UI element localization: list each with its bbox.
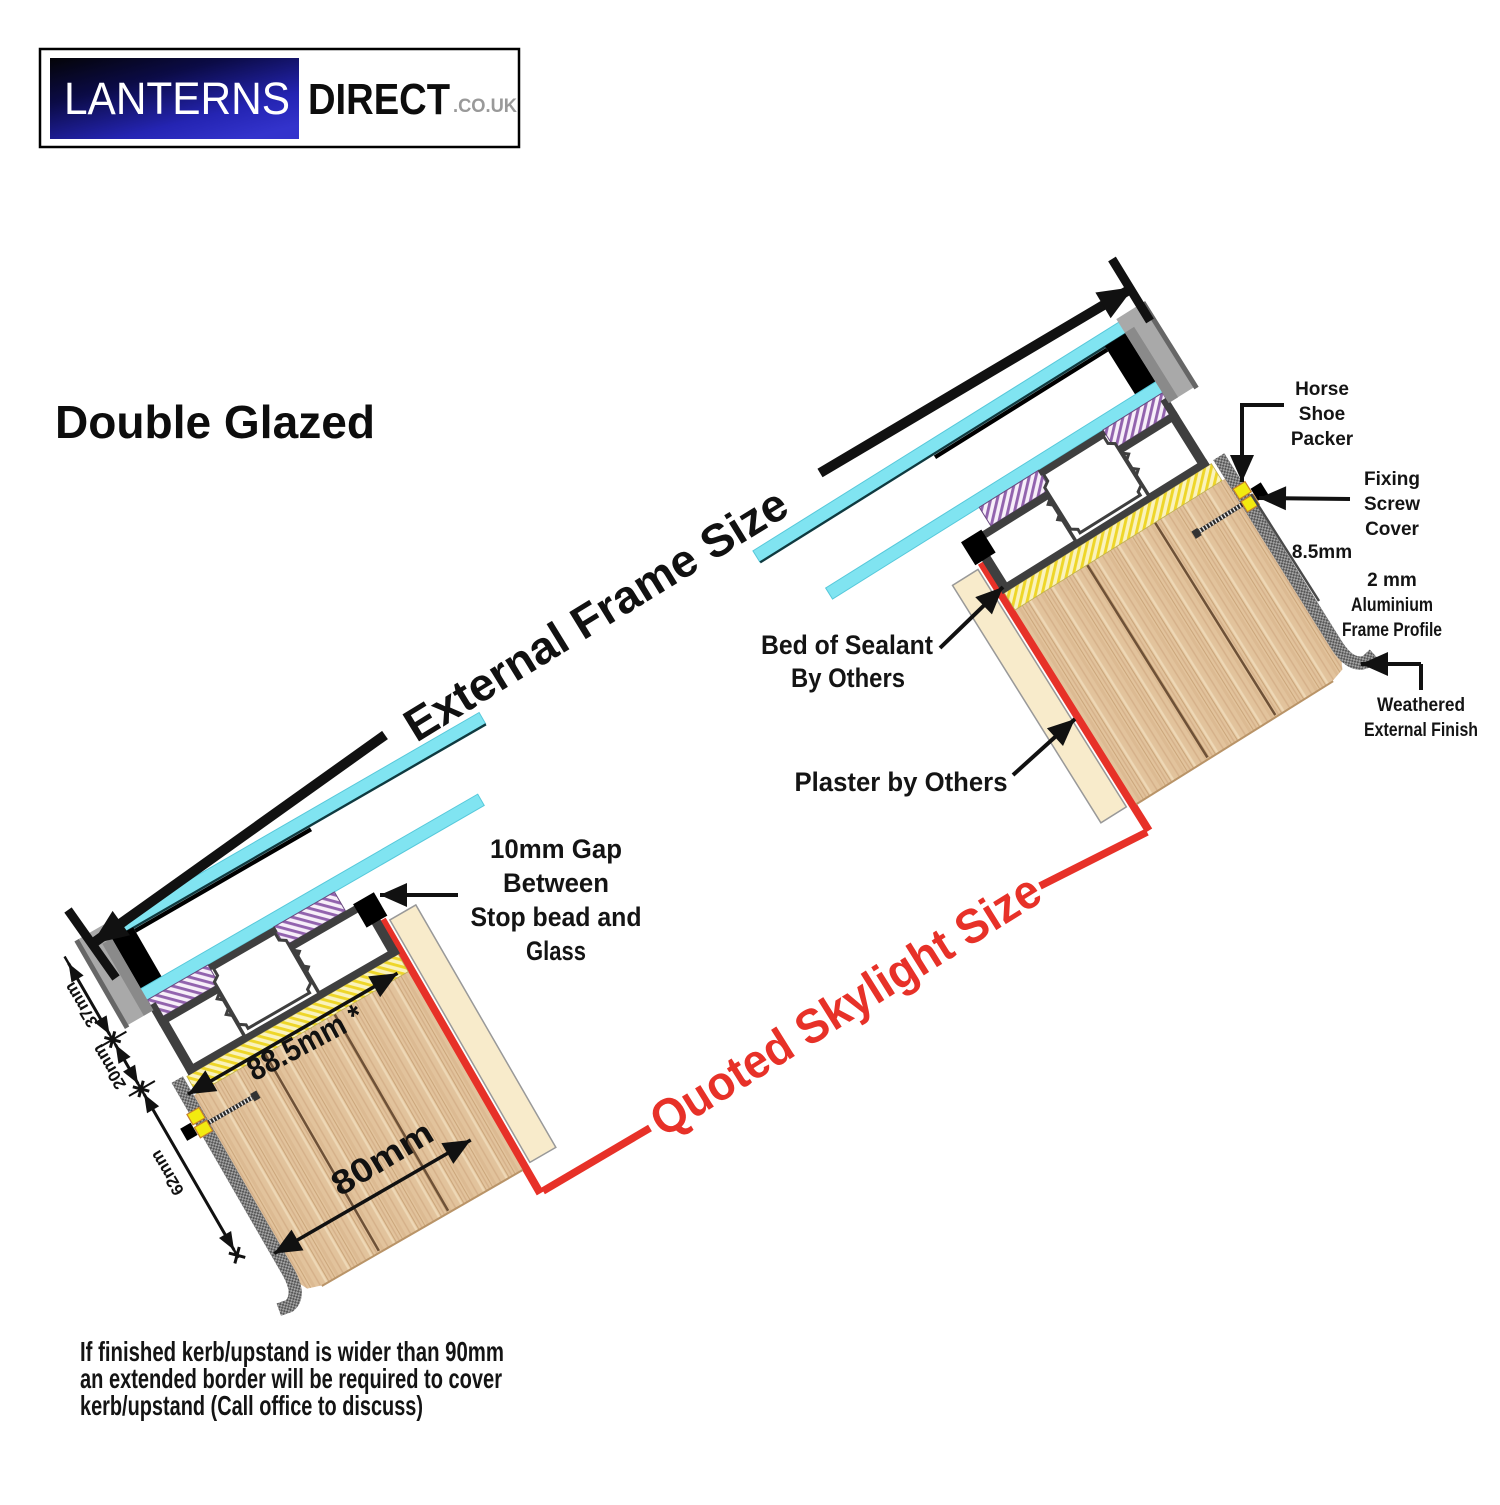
svg-text:62mm: 62mm: [146, 1147, 188, 1199]
svg-text:By Others: By Others: [791, 663, 905, 693]
svg-text:Horse: Horse: [1295, 379, 1349, 400]
svg-text:Cover: Cover: [1365, 519, 1419, 540]
svg-text:Bed of Sealant: Bed of Sealant: [761, 630, 933, 660]
svg-text:Quoted Skylight Size: Quoted Skylight Size: [641, 864, 1051, 1147]
svg-text:External Frame Size: External Frame Size: [394, 477, 796, 751]
svg-text:8.5mm: 8.5mm: [1292, 542, 1352, 563]
svg-text:Glass: Glass: [526, 936, 586, 966]
svg-text:2 mm: 2 mm: [1367, 570, 1417, 591]
svg-text:kerb/upstand (Call office to d: kerb/upstand (Call office to discuss): [80, 1390, 423, 1421]
svg-text:Plaster by Others: Plaster by Others: [795, 767, 1008, 797]
svg-text:DIRECT: DIRECT: [308, 75, 450, 124]
svg-text:37mm: 37mm: [60, 979, 102, 1031]
svg-text:External Finish: External Finish: [1364, 720, 1478, 741]
svg-text:Fixing: Fixing: [1364, 469, 1420, 490]
svg-text:Double Glazed: Double Glazed: [55, 396, 375, 448]
svg-text:Screw: Screw: [1364, 494, 1420, 515]
svg-text:.CO.UK: .CO.UK: [453, 96, 517, 117]
svg-text:Frame Profile: Frame Profile: [1342, 620, 1442, 641]
svg-text:Stop bead and: Stop bead and: [471, 902, 642, 932]
svg-text:20mm: 20mm: [88, 1041, 130, 1093]
svg-text:10mm Gap: 10mm Gap: [490, 834, 622, 864]
svg-text:Weathered: Weathered: [1377, 695, 1465, 716]
svg-text:Between: Between: [503, 868, 609, 898]
svg-text:Shoe: Shoe: [1299, 404, 1345, 425]
svg-text:Packer: Packer: [1291, 429, 1354, 450]
svg-text:Aluminium: Aluminium: [1351, 595, 1433, 616]
svg-text:LANTERNS: LANTERNS: [64, 73, 290, 124]
